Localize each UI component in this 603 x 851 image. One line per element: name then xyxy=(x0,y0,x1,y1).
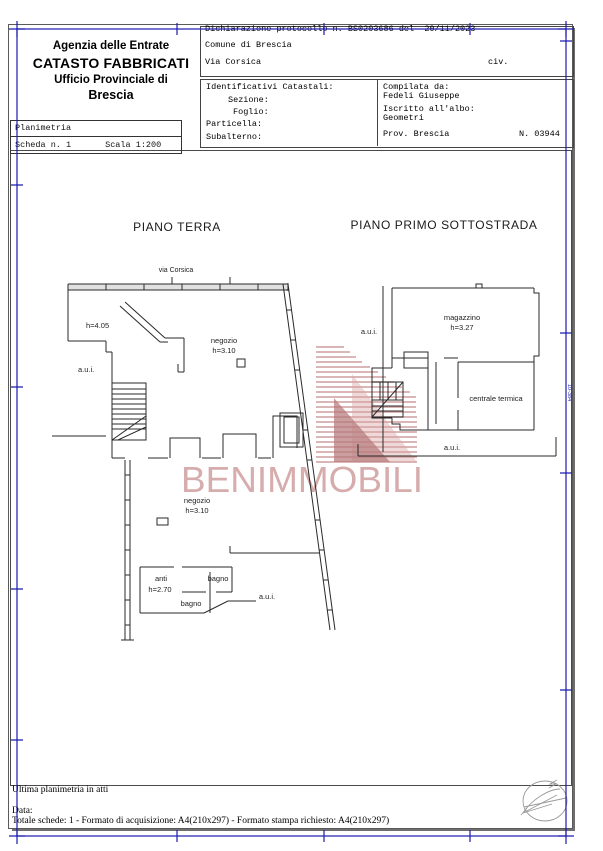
ground-h310a-label: h=3.10 xyxy=(212,346,235,355)
ground-negozio2-label: negozio xyxy=(184,496,210,505)
watermark-logo xyxy=(316,347,417,462)
registration-frame xyxy=(9,21,574,844)
basement-aui-left-label: a.u.i. xyxy=(361,327,377,336)
ground-aui-left-label: a.u.i. xyxy=(78,365,94,374)
ground-h310b-label: h=3.10 xyxy=(185,506,208,515)
ground-aui-bottom-label: a.u.i. xyxy=(259,592,275,601)
ground-h270-label: h=2.70 xyxy=(148,585,171,594)
ground-street-label: via Corsica xyxy=(159,267,194,274)
ground-negozio1-label: negozio xyxy=(211,336,237,345)
footer-ultima: Ultima planimetria in atti xyxy=(12,785,108,795)
surveyor-stamp-icon xyxy=(521,780,567,821)
floorplan-drawing: BENIMMOBILI PIANO TERRA PIANO PRIMO SOTT… xyxy=(0,0,603,851)
ground-anti-label: anti xyxy=(155,574,167,583)
basement-h327-label: h=3.27 xyxy=(450,323,473,332)
footer-data: Data: xyxy=(12,806,33,816)
basement-aui-bottom-label: a.u.i. xyxy=(444,443,460,452)
watermark-text: BENIMMOBILI xyxy=(181,459,423,500)
basement-floor-title: PIANO PRIMO SOTTOSTRADA xyxy=(351,218,538,232)
edge-vertical-code: 10-384 xyxy=(566,384,572,401)
ground-bagno1-label: bagno xyxy=(208,574,229,583)
basement-centrale-label: centrale termica xyxy=(469,394,523,403)
ground-h405-label: h=4.05 xyxy=(86,321,109,330)
ground-bagno2-label: bagno xyxy=(181,599,202,608)
basement-magazzino-label: magazzino xyxy=(444,313,480,322)
planimetria-page: Agenzia delle Entrate CATASTO FABBRICATI… xyxy=(0,0,603,851)
ground-floor-title: PIANO TERRA xyxy=(133,220,221,234)
footer-totale: Totale schede: 1 - Formato di acquisizio… xyxy=(12,816,389,826)
